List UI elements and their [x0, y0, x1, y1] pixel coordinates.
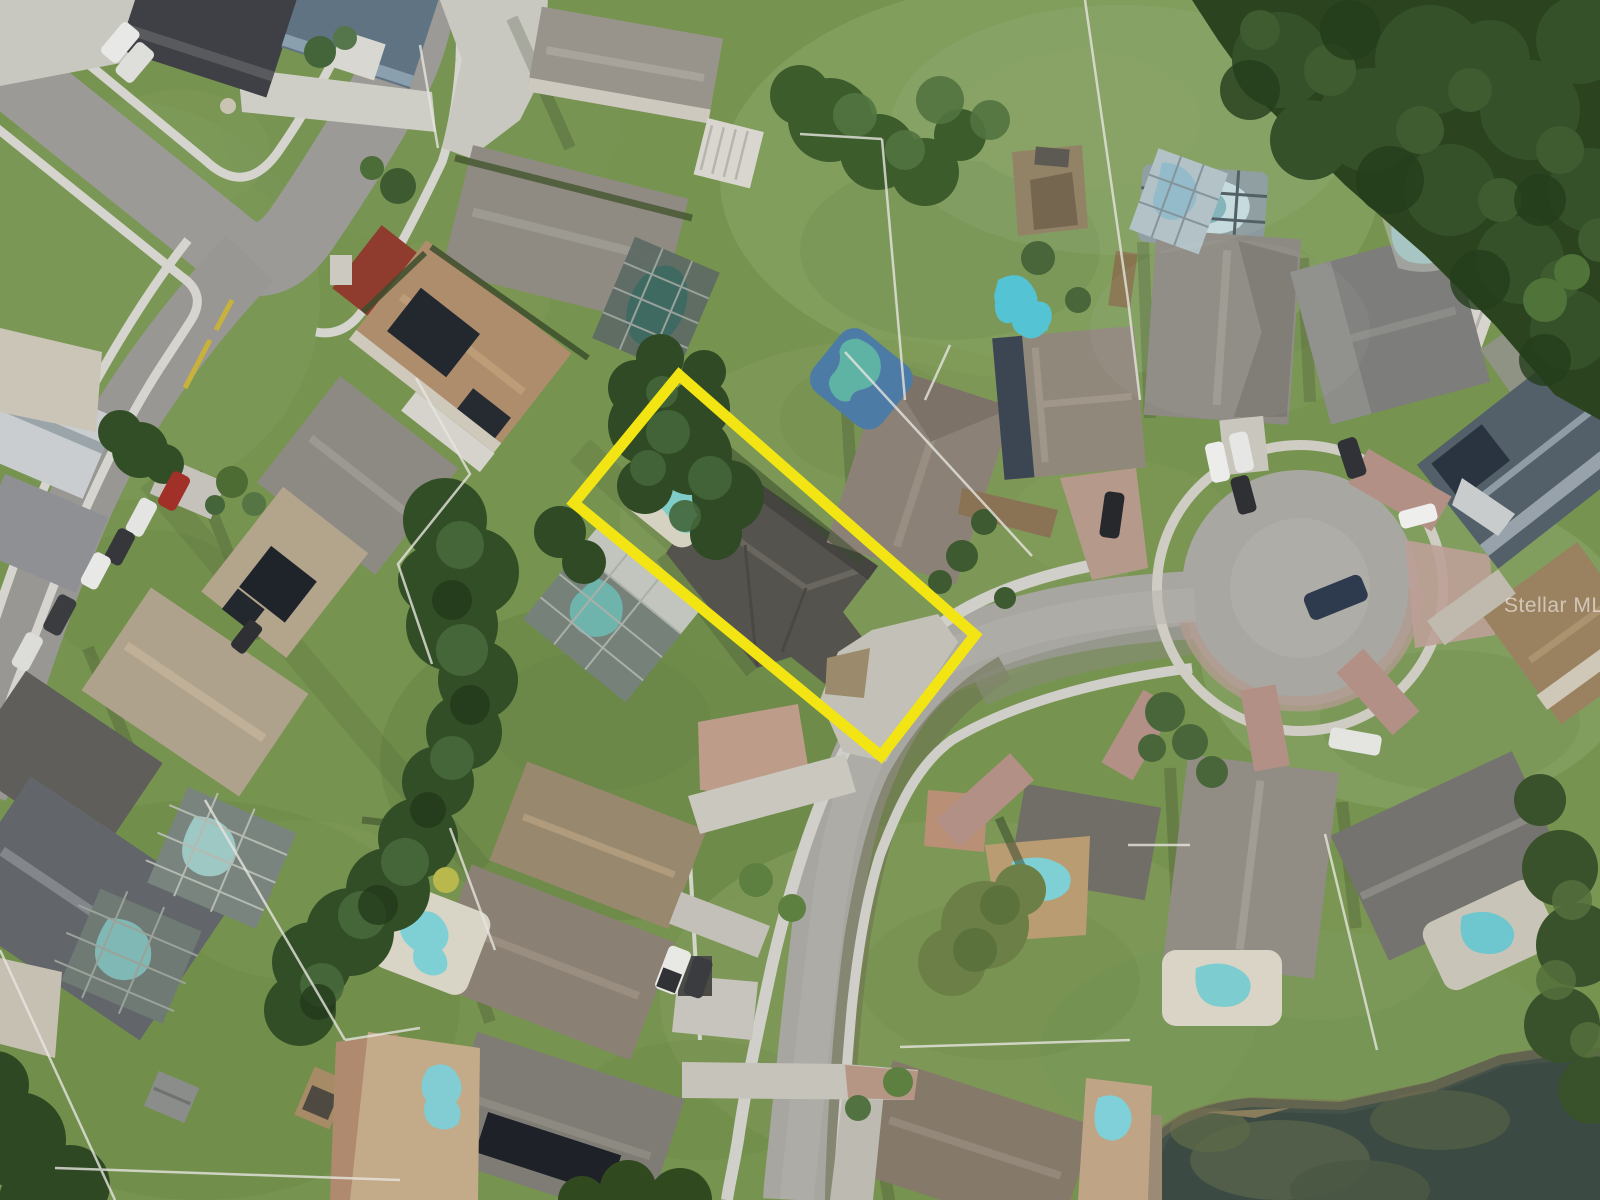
svg-text:Stellar MLS: Stellar MLS [1504, 594, 1600, 617]
